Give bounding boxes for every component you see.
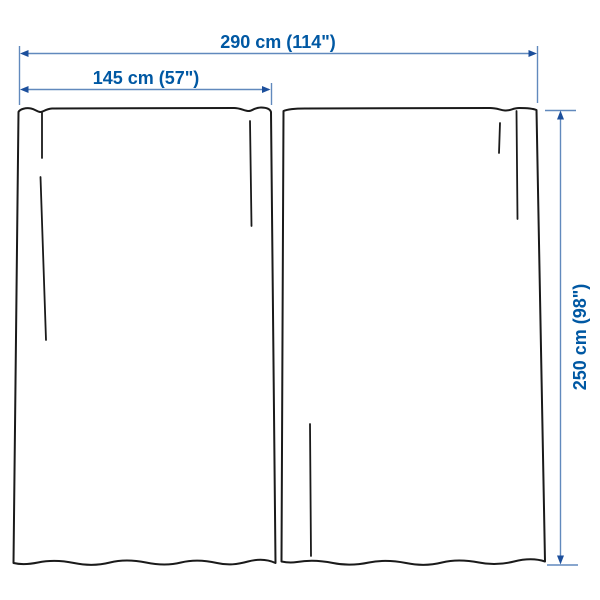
curtain-dimension-diagram: 290 cm (114") 145 cm (57") 250 cm (98") <box>0 0 600 600</box>
curtain-panels-group <box>14 108 546 565</box>
total-width-label: 290 cm (114") <box>220 33 336 51</box>
arrow-250-up <box>557 111 564 120</box>
diagram-canvas <box>0 0 600 600</box>
arrow-290-right <box>529 50 538 57</box>
arrow-290-left <box>20 50 29 57</box>
fold-line-right-short <box>499 123 500 153</box>
fold-line-right-long <box>517 111 518 219</box>
panel-width-label: 145 cm (57") <box>93 69 200 87</box>
curtain-panel-left <box>14 108 276 565</box>
panel-height-label: 250 cm (98") <box>571 284 589 391</box>
arrow-145-left <box>20 86 29 93</box>
fold-line-right-bottom <box>310 424 311 556</box>
arrow-145-right <box>262 86 271 93</box>
arrow-250-down <box>557 556 564 565</box>
curtain-panel-right <box>282 108 546 565</box>
